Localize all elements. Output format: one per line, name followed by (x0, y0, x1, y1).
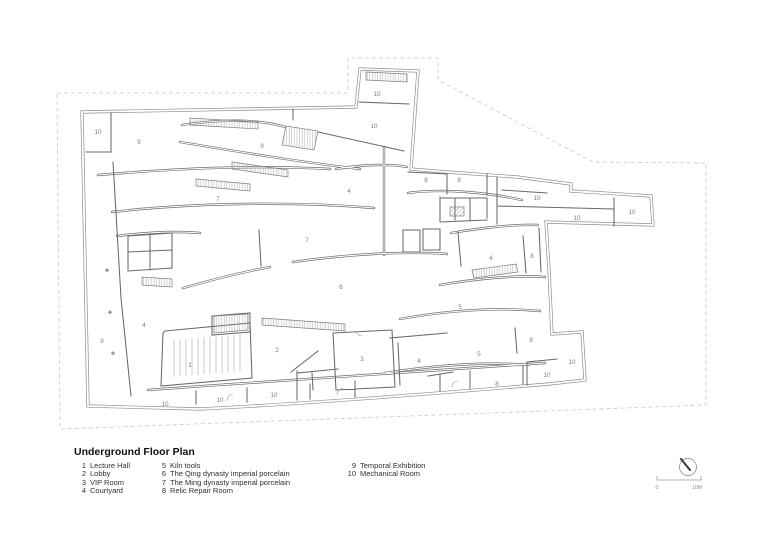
room-number-label: 9 (137, 139, 141, 146)
room-number-label: 10 (216, 397, 224, 404)
room-number-label: 4 (417, 358, 421, 365)
legend-column-2: 5Kiln tools6The Qing dynasty imperial po… (156, 462, 290, 496)
room-number-label: 2 (275, 347, 279, 354)
room-number-label: 10 (573, 215, 581, 222)
room-number-label: 10 (370, 123, 378, 130)
room-number-label: 8 (529, 337, 533, 344)
legend-item-label: Courtyard (90, 487, 123, 495)
room-number-label: 9 (260, 143, 264, 150)
room-number-label: 5 (458, 304, 462, 311)
north-indicator (680, 459, 697, 476)
building-outline (82, 69, 653, 409)
legend-item-number: 4 (76, 487, 86, 495)
scale-start-label: 0 (656, 485, 659, 491)
legend-item: 10Mechanical Room (340, 470, 425, 478)
legend-item: 8Relic Repair Room (156, 487, 290, 495)
room-number-label: 1 (188, 362, 192, 369)
scale-bar: 0 10M (656, 476, 702, 491)
legend-column-1: 1Lecture Hall2Lobby3VIP Room4Courtyard (76, 462, 130, 496)
scale-end-label: 10M (692, 485, 702, 491)
legend-item-label: Relic Repair Room (170, 487, 233, 495)
room-number-label: 4 (142, 322, 146, 329)
room-number-label: 4 (347, 188, 351, 195)
scale-bar-line (657, 476, 701, 480)
room-number-label: 10 (94, 129, 102, 136)
room-number-label: 7 (216, 196, 220, 203)
room-number-label: 8 (424, 177, 428, 184)
plan-title: Underground Floor Plan (74, 446, 195, 458)
room-number-label: 8 (457, 177, 461, 184)
floor-plan-sheet: { "title": "Underground Floor Plan", "le… (0, 0, 780, 552)
room-number-label: 10 (543, 372, 551, 379)
legend-item-number: 10 (340, 470, 356, 478)
legend-item-number: 8 (156, 487, 166, 495)
room-number-label: 6 (339, 284, 343, 291)
room-number-label: 5 (477, 351, 481, 358)
room-number-label: 3 (360, 356, 364, 363)
room-number-label: 10 (270, 392, 278, 399)
room-number-label: 10 (373, 91, 381, 98)
room-number-label: 10 (628, 209, 636, 216)
room-number-label: 7 (305, 237, 309, 244)
room-number-label: 4 (489, 255, 493, 262)
room-number-label: 10 (568, 359, 576, 366)
room-number-label: 8 (495, 381, 499, 388)
room-number-label: 10 (161, 401, 169, 408)
room-number-label: 9 (100, 338, 104, 345)
legend-item: 4Courtyard (76, 487, 130, 495)
room-number-label: 10 (533, 195, 541, 202)
legend-column-3: 9Temporal Exhibition10Mechanical Room (340, 462, 425, 479)
legend-item-label: Mechanical Room (360, 470, 420, 478)
room-number-label: 8 (530, 253, 534, 260)
